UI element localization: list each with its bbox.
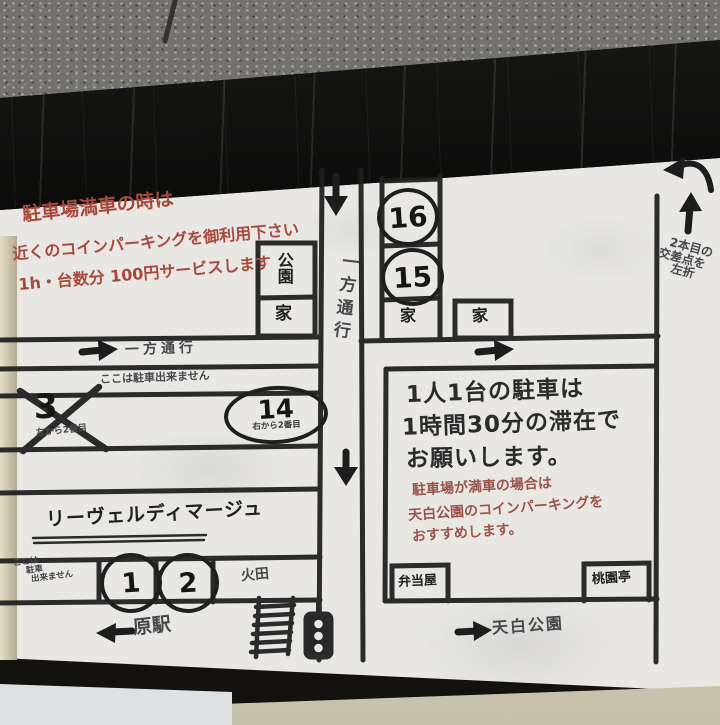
house-label-2: 家 — [400, 308, 416, 325]
parking-rule-line-1: 1人1台の駐車は — [406, 377, 585, 407]
field-label: 火田 — [240, 567, 269, 584]
spot-14-note: 右から2番目 — [252, 422, 301, 432]
bento-shop-label: 弁当屋 — [398, 574, 438, 590]
park-box-label: 公園 — [275, 252, 292, 284]
spot-1-number: 1 — [121, 567, 142, 599]
whiteboard-parking-map-photo: 駐車場満車の時は 近くのコインパーキングを御利用下さい 1h・台数分 100円サ… — [0, 0, 720, 725]
parking-rule-line-3: お願いします。 — [406, 445, 572, 472]
one-way-left-label: 一方通行 — [125, 341, 197, 358]
house-label-1: 家 — [275, 306, 292, 324]
spot-16-number: 16 — [387, 199, 428, 235]
spot-2-number: 2 — [178, 567, 198, 599]
spot-15-number: 15 — [392, 260, 433, 295]
frame-left-edge — [0, 236, 17, 660]
station-label: 原駅 — [132, 615, 172, 639]
house-label-3: 家 — [471, 307, 488, 325]
spot-3-number: 3 — [34, 390, 58, 426]
restaurant-label: 桃園亭 — [592, 571, 632, 587]
